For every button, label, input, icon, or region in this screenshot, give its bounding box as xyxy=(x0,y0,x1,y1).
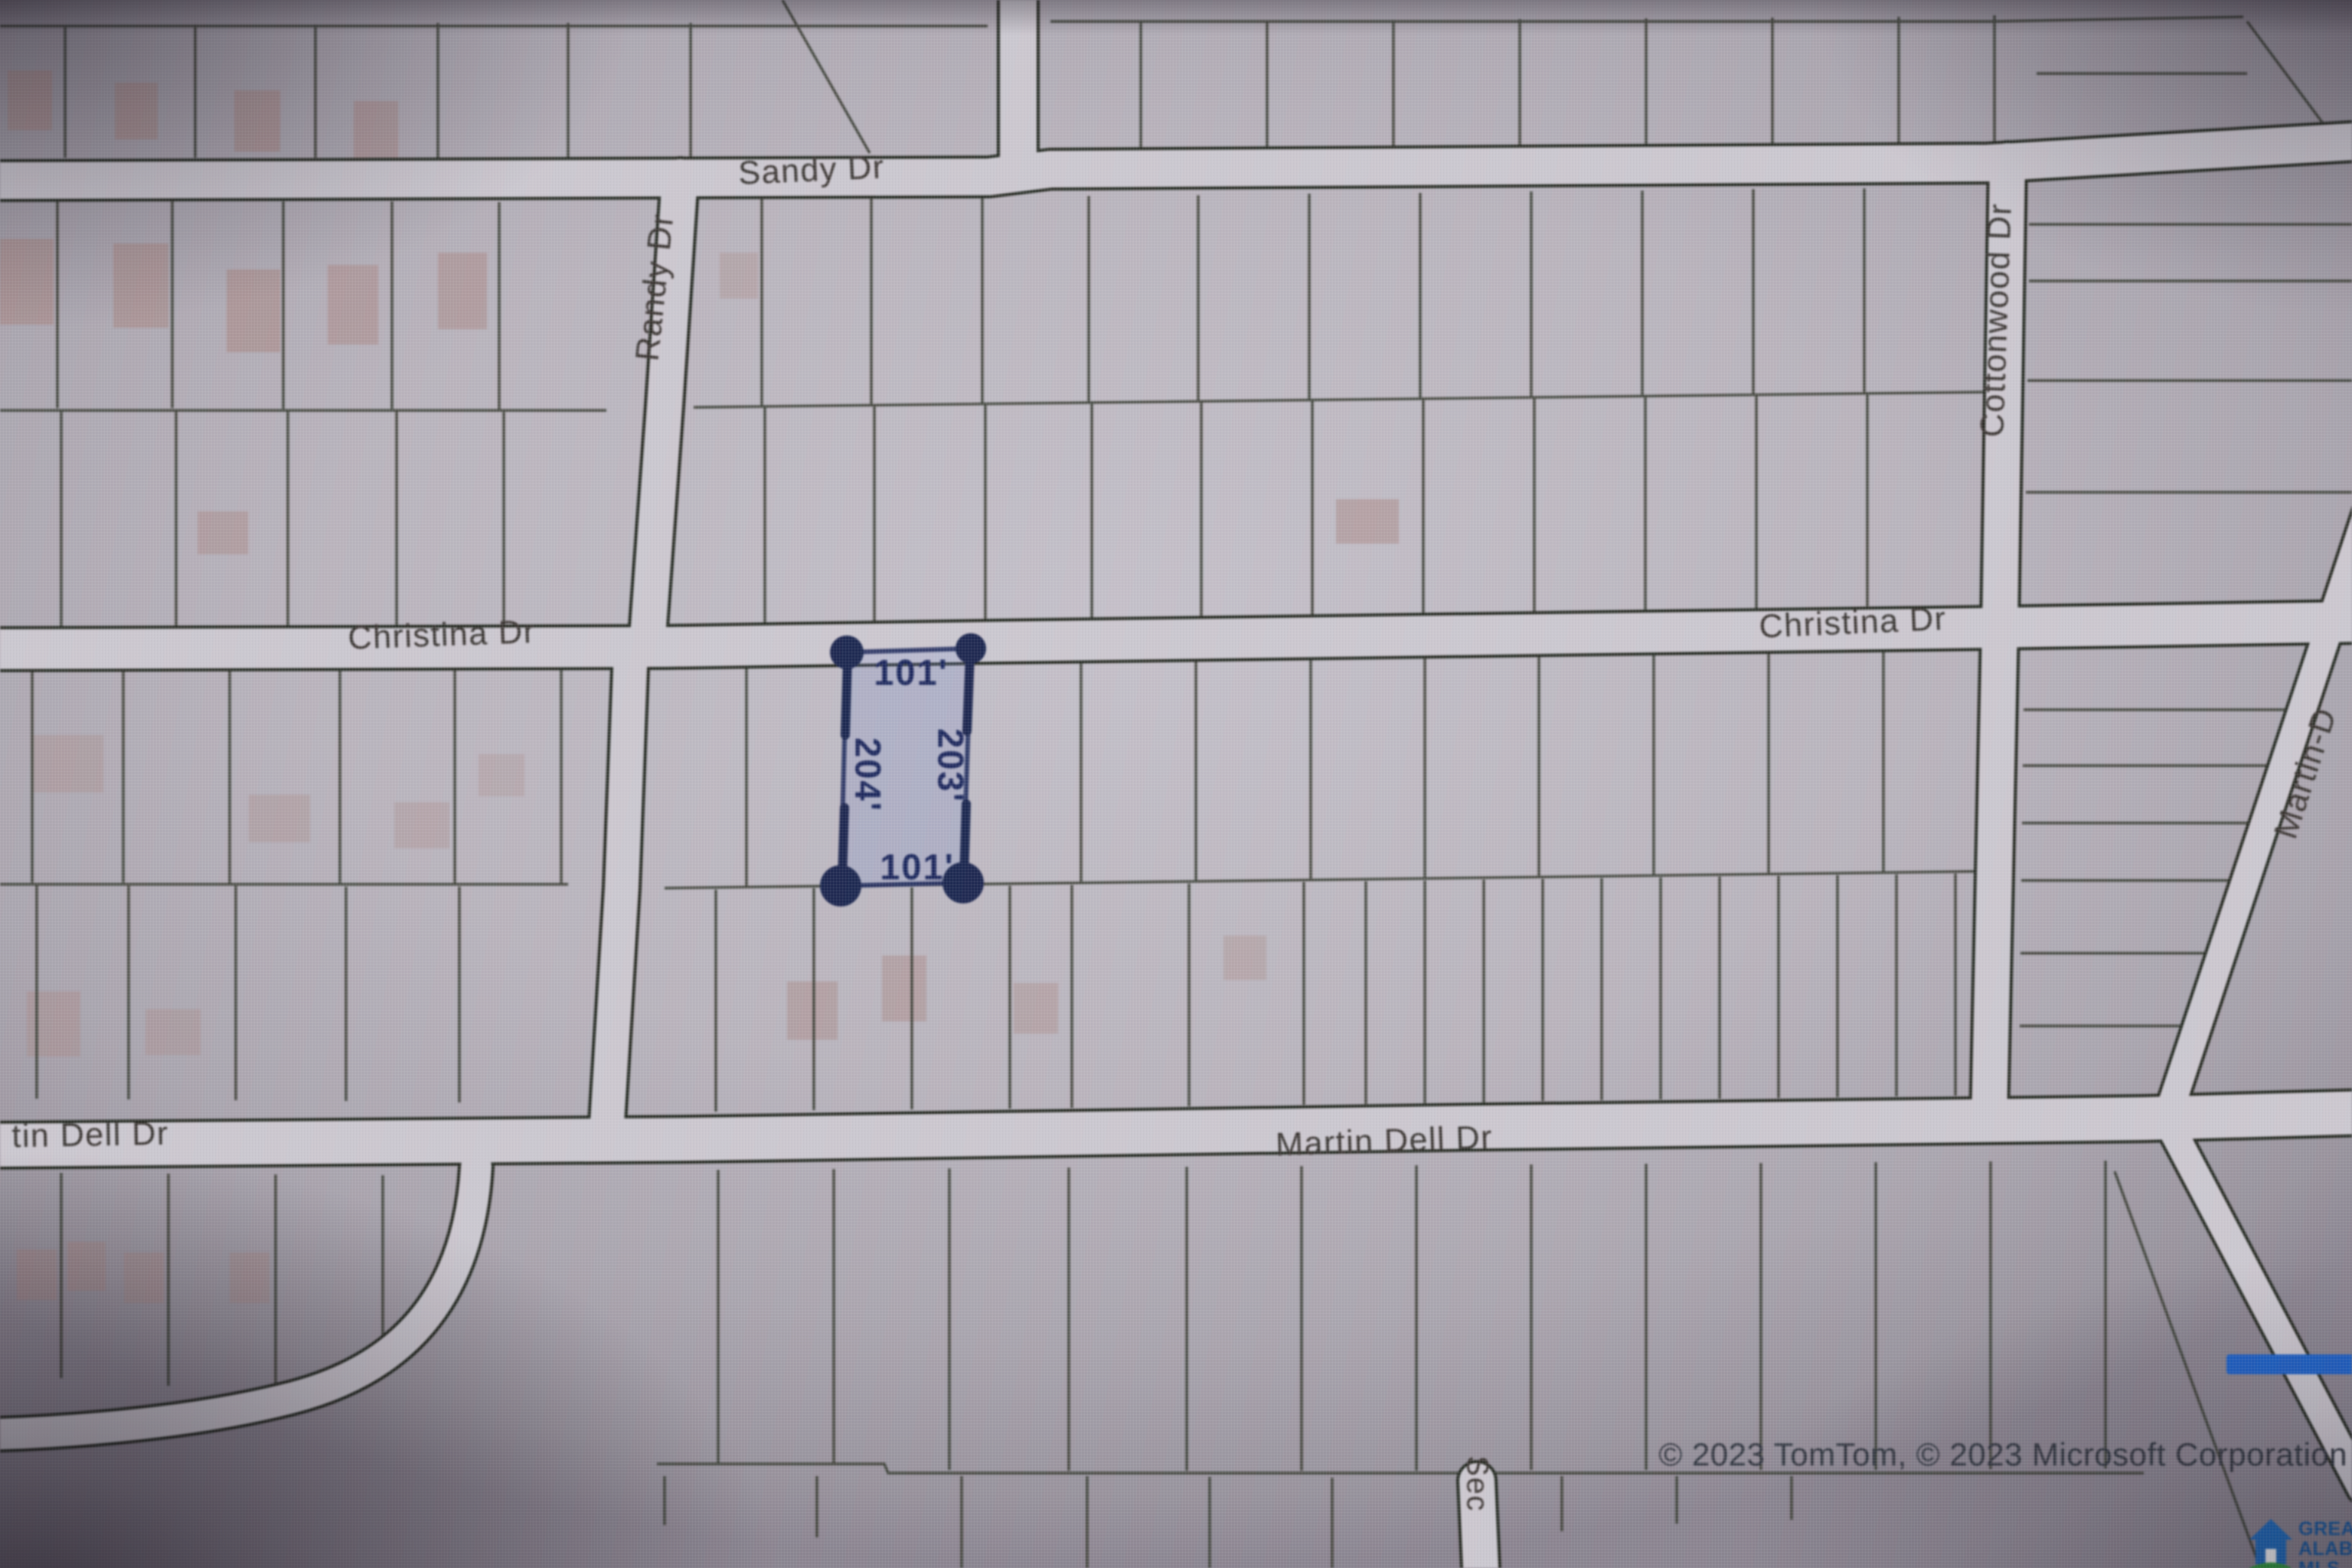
parcel-dim-bottom: 101' xyxy=(880,846,955,888)
street-label-christina-west: Christina Dr xyxy=(348,613,537,658)
street-label-martin-dell-center: Martin Dell Dr xyxy=(1275,1119,1493,1165)
mls-logo-line1: GREATER xyxy=(2298,1519,2352,1539)
parcel-dim-right: 203' xyxy=(930,728,972,803)
mls-logo-line3: MLS xyxy=(2298,1559,2352,1568)
map-canvas[interactable]: Sandy Dr Randy Dr Cottonwood Dr Christin… xyxy=(0,0,2352,1568)
blue-highlight-bar xyxy=(2226,1354,2352,1374)
parcel-dim-top: 101' xyxy=(874,652,949,694)
parcel-dim-left: 204' xyxy=(848,737,890,812)
map-screenshot: Sandy Dr Randy Dr Cottonwood Dr Christin… xyxy=(0,0,2352,1568)
mls-logo-line2: ALABAMA xyxy=(2298,1539,2352,1559)
map-attribution: © 2023 TomTom, © 2023 Microsoft Corporat… xyxy=(1658,1436,2347,1473)
street-label-sec-partial: Sec xyxy=(1460,1455,1494,1511)
mls-logo: GREATER ALABAMA MLS xyxy=(2249,1519,2352,1568)
mls-house-icon xyxy=(2249,1519,2292,1568)
street-label-sandy: Sandy Dr xyxy=(737,149,885,192)
street-label-martin-dell-west-partial: tin Dell Dr xyxy=(11,1116,169,1156)
